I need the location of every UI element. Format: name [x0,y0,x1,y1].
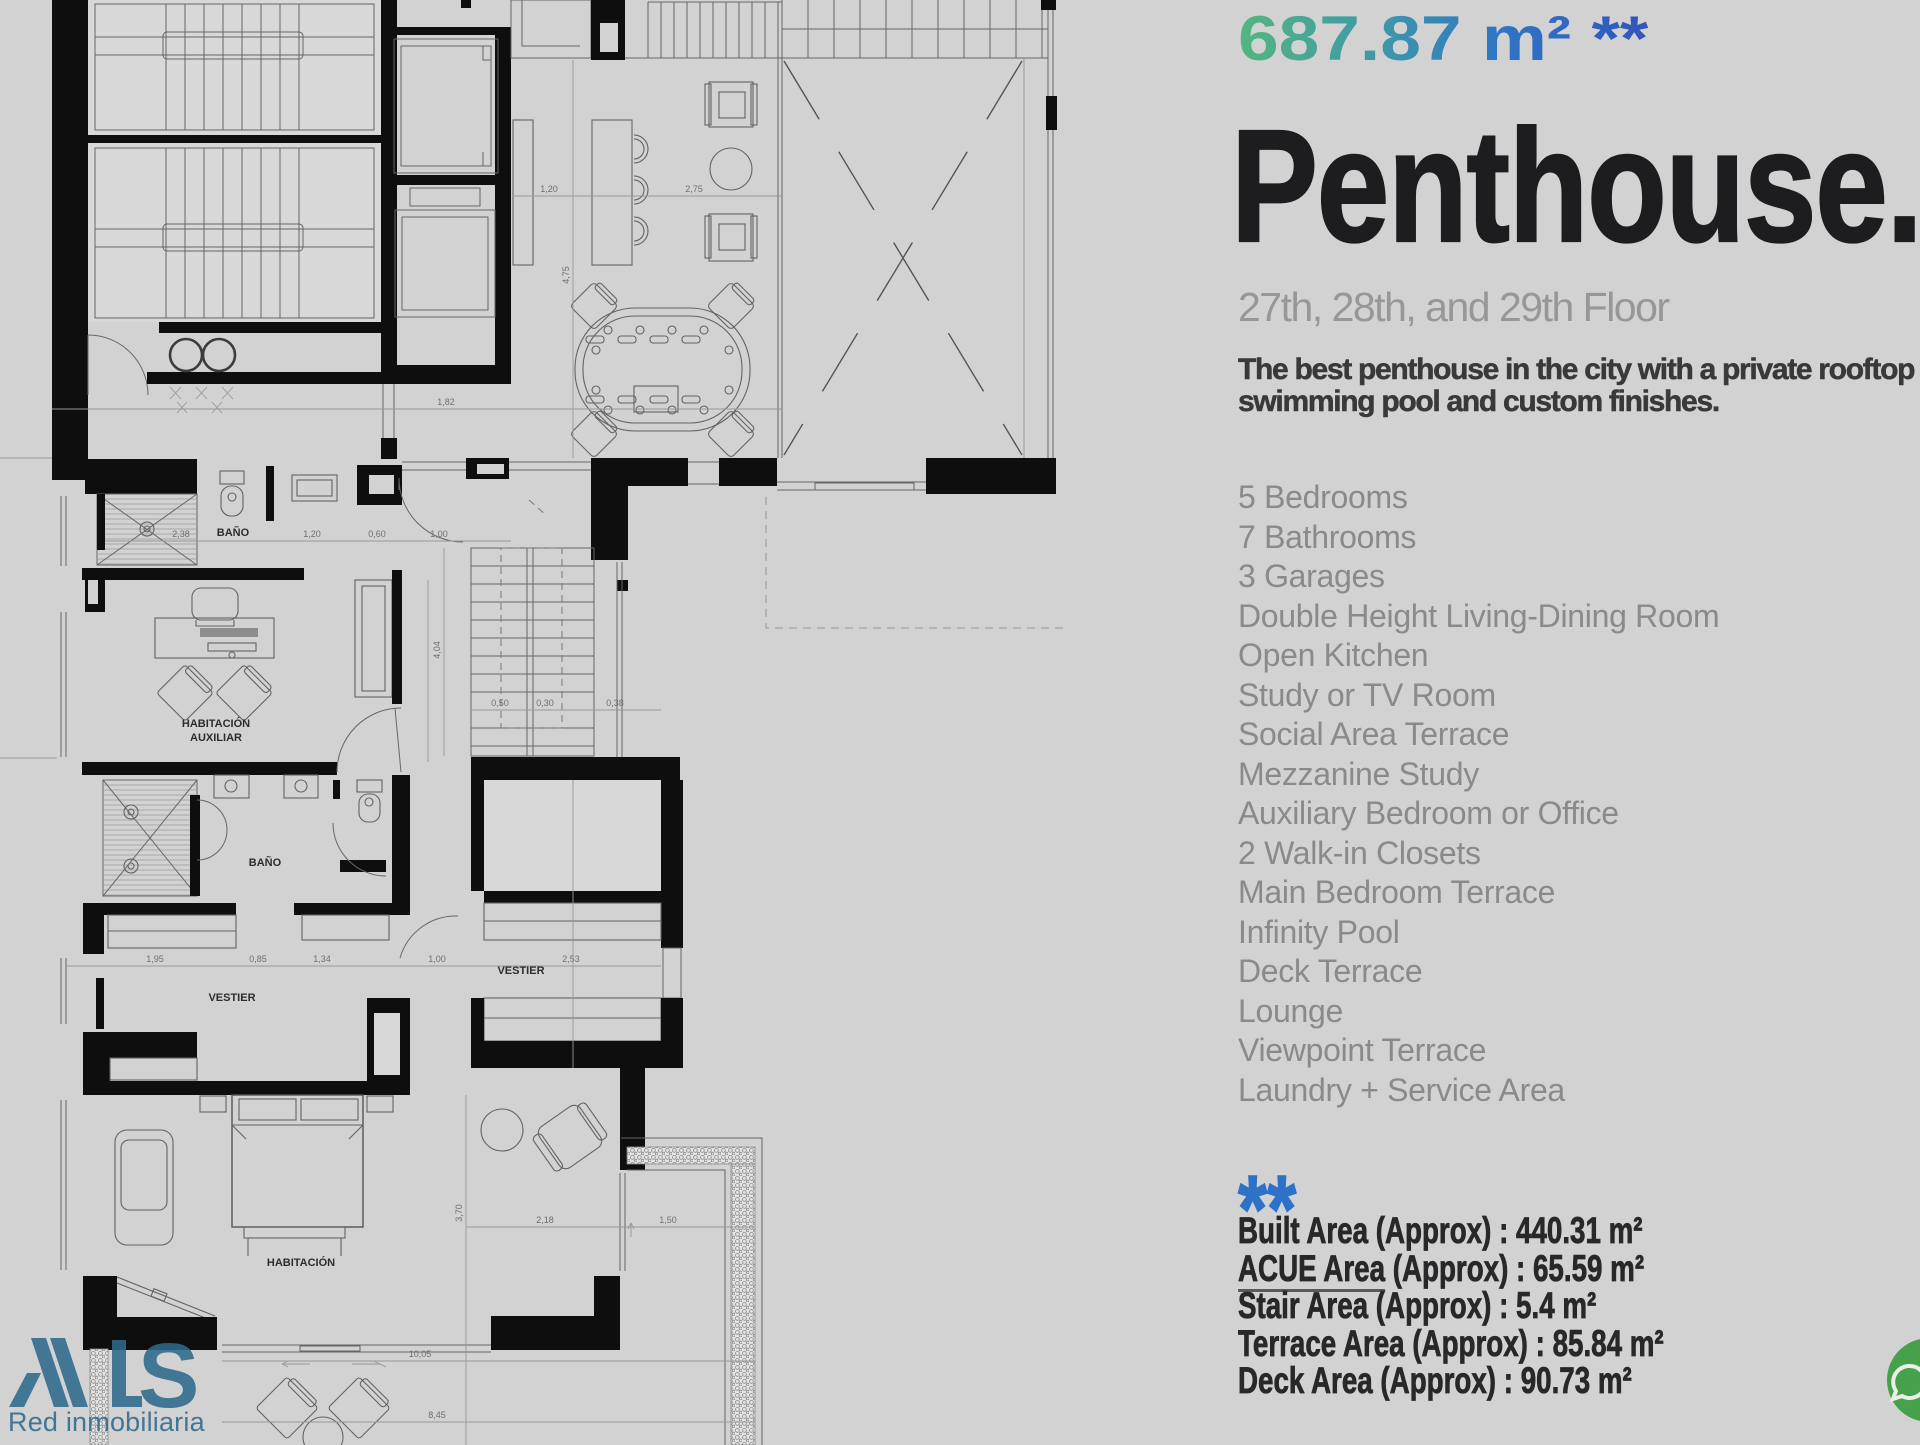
svg-text:2,38: 2,38 [172,529,190,539]
svg-text:HABITACIÓN: HABITACIÓN [267,1256,335,1269]
svg-text:1,82: 1,82 [437,397,455,407]
svg-text:2,53: 2,53 [562,954,580,964]
svg-text:1,95: 1,95 [146,954,164,964]
svg-text:1,50: 1,50 [659,1215,677,1225]
svg-text:BAÑO: BAÑO [217,526,250,539]
svg-text:4,75: 4,75 [561,266,571,284]
svg-text:AUXILIAR: AUXILIAR [190,732,242,744]
svg-text:Red inmobiliaria: Red inmobiliaria [8,1407,206,1437]
svg-text:0,30: 0,30 [536,698,554,708]
svg-text:3,70: 3,70 [454,1204,464,1222]
svg-text:1,00: 1,00 [428,954,446,964]
svg-text:0,85: 0,85 [249,954,267,964]
svg-text:2,18: 2,18 [536,1215,554,1225]
svg-text:1,20: 1,20 [303,529,321,539]
svg-text:8,45: 8,45 [428,1410,446,1420]
svg-text:0,50: 0,50 [491,698,509,708]
svg-text:1,00: 1,00 [430,529,448,539]
svg-text:0,60: 0,60 [368,529,386,539]
svg-text:10,05: 10,05 [409,1349,432,1359]
svg-text:VESTIER: VESTIER [208,992,255,1004]
svg-text:BAÑO: BAÑO [249,856,282,869]
svg-text:0,38: 0,38 [606,698,624,708]
svg-text:4,04: 4,04 [432,641,442,659]
svg-text:HABITACIÓN: HABITACIÓN [182,717,250,730]
svg-text:VESTIER: VESTIER [497,965,544,977]
svg-text:2,75: 2,75 [685,184,703,194]
svg-text:1,20: 1,20 [540,184,558,194]
svg-text:1,34: 1,34 [313,954,331,964]
